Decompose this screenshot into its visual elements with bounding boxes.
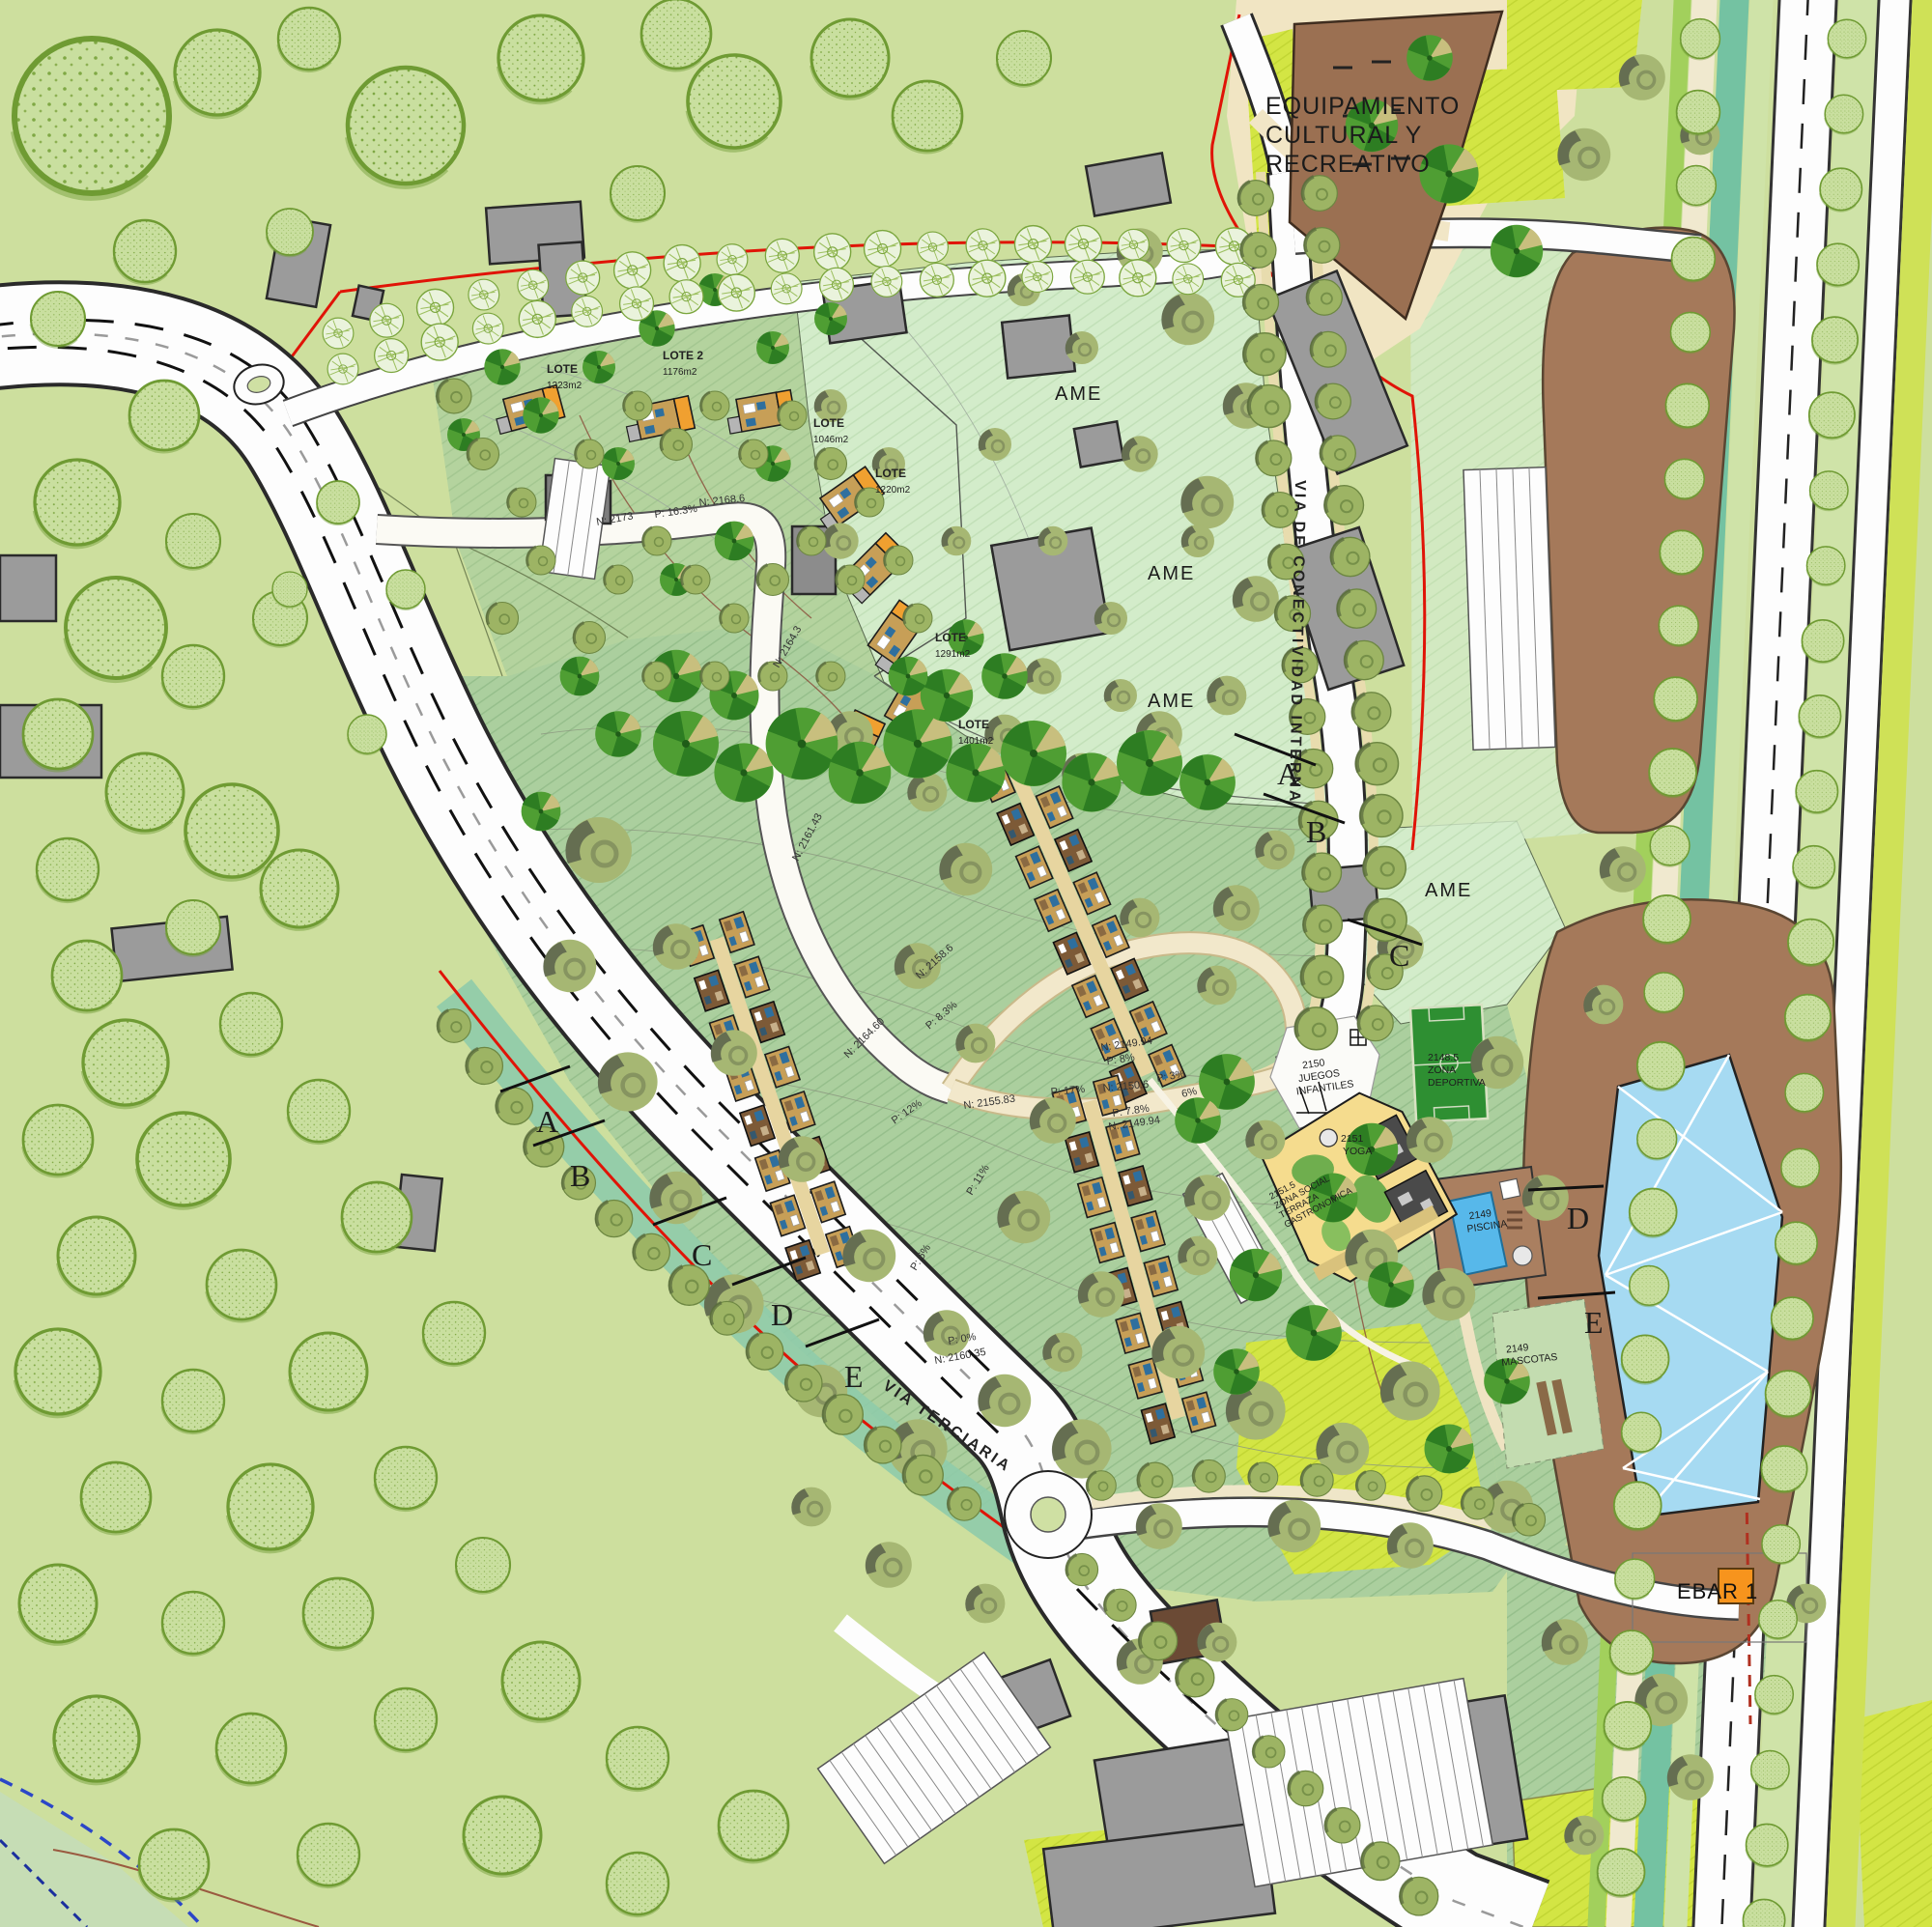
street-tree-icon (1248, 1462, 1278, 1492)
small-tree-icon (884, 546, 913, 575)
green-tree-icon (889, 657, 928, 696)
yoga-label: YOGA (1343, 1146, 1372, 1157)
avenue-tree-icon (1766, 1371, 1811, 1417)
green-tree-icon (522, 792, 561, 832)
alley-tree-icon (820, 268, 854, 301)
sketch-tree-icon (66, 578, 166, 680)
avenue-tree-icon (1603, 1777, 1646, 1822)
avenue-tree-icon (1785, 1073, 1823, 1112)
sketch-tree-icon (502, 1642, 580, 1721)
small-tree-icon (642, 662, 671, 691)
small-tree-icon (437, 379, 471, 413)
avenue-tree-icon (1681, 19, 1720, 60)
street-tree-icon (1363, 846, 1406, 889)
section-letter: C (1389, 938, 1409, 973)
lote-area: 1046m2 (813, 435, 849, 445)
street-tree-icon (1345, 640, 1383, 679)
sketch-tree-icon (997, 31, 1051, 86)
avenue-tree-icon (1664, 459, 1704, 499)
green-tree-icon (1175, 1097, 1221, 1144)
lote-label: LOTE 2 (663, 349, 703, 362)
street-tree-icon (1303, 905, 1342, 944)
street-tree-icon (1311, 331, 1347, 367)
sketch-tree-icon (811, 19, 889, 99)
deportiva-elev: 2148.5 (1428, 1052, 1459, 1063)
street-tree-icon (1248, 385, 1291, 428)
green-tree-icon (602, 447, 635, 480)
sketch-tree-icon (175, 30, 260, 117)
small-tree-icon (661, 429, 693, 461)
alley-tree-icon (1070, 260, 1104, 294)
sketch-tree-icon (288, 1080, 350, 1144)
small-tree-icon (468, 439, 499, 470)
avenue-tree-icon (1660, 530, 1703, 575)
sketch-tree-icon (272, 572, 307, 608)
lote-label: LOTE (935, 631, 966, 644)
street-tree-icon (1331, 537, 1370, 576)
avenue-tree-icon (1637, 1119, 1677, 1160)
alley-tree-icon (718, 274, 754, 311)
green-tree-icon (921, 669, 973, 722)
sketch-tree-icon (15, 1329, 100, 1416)
avenue-tree-icon (1677, 91, 1720, 135)
pool-circle (1513, 1246, 1532, 1265)
small-tree-icon (604, 565, 633, 594)
equipamiento-label-3: RECREATIVO (1265, 151, 1431, 178)
green-tree-icon (523, 397, 558, 433)
avenue-tree-icon (1809, 392, 1855, 439)
sketch-tree-icon (348, 715, 386, 754)
small-tree-icon (757, 564, 789, 596)
street-tree-icon (466, 1047, 502, 1084)
alley-tree-icon (966, 229, 1000, 263)
green-tree-icon (715, 522, 754, 561)
green-tree-icon (756, 331, 789, 364)
lote-area: 1291m2 (935, 649, 971, 660)
street-tree-icon (785, 1365, 822, 1402)
sketch-tree-icon (298, 1824, 359, 1887)
green-tree-icon (1230, 1249, 1282, 1301)
street-tree-icon (1301, 1464, 1334, 1497)
sketch-tree-icon (114, 220, 176, 284)
sketch-tree-icon (375, 1447, 437, 1511)
green-tree-icon (766, 708, 838, 780)
alley-tree-icon (614, 252, 651, 289)
sketch-tree-icon (129, 381, 199, 452)
small-tree-icon (797, 526, 826, 555)
alley-tree-icon (871, 267, 902, 298)
sketch-tree-icon (303, 1578, 373, 1650)
equipamiento-label-2: CULTURAL Y (1265, 122, 1422, 149)
avenue-tree-icon (1761, 1446, 1806, 1492)
street-tree-icon (1176, 1658, 1214, 1697)
gray-building (0, 555, 56, 621)
street-tree-icon (1104, 1589, 1136, 1621)
sketch-tree-icon (498, 15, 583, 102)
small-tree-icon (816, 662, 845, 691)
green-tree-icon (1286, 1305, 1342, 1361)
alley-tree-icon (918, 232, 949, 263)
alley-tree-icon (421, 324, 458, 360)
street-tree-icon (1304, 228, 1340, 264)
street-tree-icon (633, 1233, 669, 1270)
sketch-tree-icon (641, 0, 711, 71)
street-tree-icon (1253, 1736, 1285, 1768)
avenue-tree-icon (1812, 317, 1858, 363)
gray-building (1074, 421, 1123, 467)
avenue-tree-icon (1630, 1265, 1669, 1306)
parking-lot (1463, 468, 1555, 751)
avenue-tree-icon (1598, 1849, 1645, 1897)
avenue-tree-icon (1665, 383, 1709, 428)
street-tree-icon (1316, 383, 1351, 419)
avenue-tree-icon (1677, 166, 1717, 207)
small-tree-icon (642, 526, 671, 555)
street-tree-icon (1406, 1476, 1442, 1512)
green-tree-icon (595, 711, 641, 757)
green-tree-icon (981, 653, 1028, 699)
avenue-tree-icon (1802, 620, 1843, 663)
sketch-tree-icon (220, 993, 282, 1057)
alley-tree-icon (327, 354, 358, 384)
green-tree-icon (484, 349, 520, 384)
sketch-tree-icon (607, 1853, 668, 1916)
deportiva-label: DEPORTIVA (1428, 1077, 1486, 1089)
alley-tree-icon (375, 339, 409, 373)
street-tree-icon (1356, 743, 1399, 785)
alley-tree-icon (1119, 229, 1150, 260)
street-tree-icon (710, 1301, 744, 1335)
avenue-tree-icon (1604, 1702, 1651, 1750)
street-tree-icon (1302, 176, 1338, 212)
sketch-tree-icon (83, 1020, 168, 1107)
street-tree-icon (1243, 285, 1279, 321)
lote-label: LOTE (875, 467, 906, 480)
small-tree-icon (815, 448, 847, 480)
avenue-tree-icon (1759, 1601, 1797, 1639)
street-tree-icon (1337, 589, 1376, 628)
alley-tree-icon (1014, 226, 1051, 263)
sketch-tree-icon (37, 838, 99, 902)
alley-tree-icon (1167, 229, 1201, 263)
street-tree-icon (1301, 955, 1344, 998)
street-tree-icon (1361, 1842, 1400, 1881)
street-tree-icon (1065, 1553, 1097, 1585)
sketch-tree-icon (166, 514, 220, 569)
avenue-tree-icon (1644, 973, 1684, 1013)
avenue-tree-icon (1820, 168, 1861, 211)
ame-label: AME (1148, 691, 1195, 712)
sketch-tree-icon (216, 1714, 286, 1785)
avenue-tree-icon (1817, 243, 1859, 286)
small-tree-icon (575, 439, 604, 468)
sketch-tree-icon (228, 1464, 313, 1551)
street-tree-icon (1302, 853, 1341, 892)
ame-label: AME (1148, 563, 1195, 584)
avenue-tree-icon (1788, 920, 1833, 966)
roundabout-island (1031, 1497, 1065, 1532)
street-tree-icon (903, 1455, 943, 1494)
sketch-tree-icon (423, 1302, 485, 1366)
sketch-tree-icon (261, 850, 338, 929)
sketch-tree-icon (464, 1797, 541, 1876)
street-tree-icon (1513, 1503, 1546, 1536)
avenue-tree-icon (1776, 1222, 1817, 1264)
sketch-tree-icon (31, 292, 85, 347)
sketch-tree-icon (23, 1105, 93, 1176)
street-tree-icon (1216, 1699, 1248, 1731)
alley-tree-icon (417, 289, 454, 326)
avenue-tree-icon (1643, 895, 1690, 944)
green-tree-icon (1425, 1425, 1474, 1474)
street-tree-icon (438, 1009, 471, 1043)
small-tree-icon (507, 488, 536, 517)
sketch-tree-icon (342, 1182, 412, 1254)
sketch-tree-icon (54, 1696, 139, 1783)
street-tree-icon (1256, 440, 1292, 476)
avenue-tree-icon (1810, 471, 1848, 510)
sketch-tree-icon (81, 1462, 151, 1534)
green-tree-icon (714, 743, 773, 802)
avenue-tree-icon (1828, 19, 1865, 58)
alley-tree-icon (669, 280, 703, 314)
site-plan-svg: EQUIPAMIENTO CULTURAL Y RECREATIVO AME A… (0, 0, 1932, 1927)
green-tree-icon (1001, 721, 1066, 786)
sketch-tree-icon (607, 1727, 668, 1791)
sketch-tree-icon (348, 68, 464, 186)
alley-tree-icon (717, 244, 748, 275)
avenue-tree-icon (1825, 95, 1862, 133)
sketch-tree-icon (375, 1688, 437, 1752)
sketch-tree-icon (185, 784, 278, 879)
green-tree-icon (560, 657, 600, 696)
sketch-tree-icon (139, 1829, 209, 1901)
lote-label: LOTE (813, 416, 844, 430)
small-tree-icon (720, 604, 749, 633)
green-tree-icon (1062, 752, 1121, 811)
avenue-tree-icon (1785, 995, 1831, 1041)
lote-area: 1220m2 (875, 485, 911, 496)
street-tree-icon (747, 1333, 783, 1370)
section-letter: A (536, 1104, 558, 1139)
street-tree-icon (865, 1427, 901, 1463)
street-tree-icon (1358, 1006, 1394, 1041)
alley-tree-icon (518, 269, 549, 300)
alley-tree-icon (469, 279, 499, 310)
mascotas-elev: 2149 (1505, 1342, 1529, 1355)
avenue-tree-icon (1630, 1189, 1677, 1237)
street-tree-icon (823, 1395, 863, 1434)
street-tree-icon (496, 1088, 532, 1124)
street-tree-icon (1139, 1622, 1178, 1660)
alley-tree-icon (323, 318, 354, 349)
alley-tree-icon (1120, 260, 1156, 297)
sketch-tree-icon (278, 8, 340, 71)
sketch-tree-icon (35, 460, 120, 547)
street-tree-icon (1360, 795, 1403, 837)
sketch-tree-icon (267, 209, 313, 256)
avenue-tree-icon (1614, 1482, 1662, 1530)
street-tree-icon (1288, 1771, 1322, 1805)
alley-tree-icon (572, 296, 603, 326)
avenue-tree-icon (1649, 749, 1696, 797)
section-letter: D (1567, 1201, 1589, 1235)
street-tree-icon (948, 1487, 981, 1520)
small-tree-icon (739, 439, 768, 468)
avenue-tree-icon (1755, 1676, 1793, 1714)
lote-area: 1223m2 (547, 381, 582, 391)
street-tree-icon (1325, 1808, 1360, 1843)
avenue-tree-icon (1622, 1412, 1662, 1453)
equipamiento-label-1: EQUIPAMIENTO (1265, 93, 1460, 120)
avenue-tree-icon (1670, 312, 1710, 353)
street-tree-icon (1364, 898, 1406, 941)
sketch-tree-icon (162, 1370, 224, 1433)
small-tree-icon (903, 604, 932, 633)
small-tree-icon (700, 662, 729, 691)
street-tree-icon (1238, 181, 1274, 216)
sketch-tree-icon (106, 753, 184, 833)
green-tree-icon (814, 302, 847, 335)
small-tree-icon (526, 546, 555, 575)
green-tree-icon (1213, 1348, 1260, 1395)
chartreuse-avenue-corner (1855, 1700, 1932, 1927)
sketch-tree-icon (893, 81, 962, 153)
section-letter: E (844, 1359, 864, 1394)
avenue-tree-icon (1772, 1297, 1813, 1340)
street-tree-icon (1324, 486, 1363, 524)
sketch-tree-icon (162, 645, 224, 709)
avenue-tree-icon (1654, 677, 1697, 722)
alley-tree-icon (370, 303, 404, 337)
street-tree-icon (1321, 436, 1356, 471)
sketch-tree-icon (719, 1791, 788, 1862)
green-tree-icon (1368, 1261, 1414, 1308)
avenue-tree-icon (1622, 1335, 1669, 1383)
sketch-tree-icon (19, 1565, 97, 1644)
alley-tree-icon (519, 300, 555, 337)
street-tree-icon (1087, 1471, 1117, 1501)
alley-tree-icon (771, 273, 802, 304)
avenue-tree-icon (1659, 606, 1698, 646)
alley-tree-icon (620, 287, 654, 321)
avenue-tree-icon (1762, 1525, 1800, 1564)
yoga-elev: 2151 (1341, 1133, 1364, 1145)
avenue-tree-icon (1650, 826, 1690, 866)
street-tree-icon (1240, 233, 1276, 269)
alley-tree-icon (969, 260, 1006, 297)
green-tree-icon (1117, 730, 1182, 796)
small-tree-icon (574, 622, 606, 654)
street-tree-icon (1352, 693, 1391, 731)
green-tree-icon (1179, 754, 1236, 810)
alley-tree-icon (664, 245, 700, 282)
section-letter: B (1306, 814, 1326, 849)
alley-tree-icon (920, 263, 953, 297)
sketch-tree-icon (290, 1333, 367, 1412)
sketch-tree-icon (52, 941, 122, 1012)
ame-label: AME (1425, 880, 1472, 901)
sketch-tree-icon (688, 55, 781, 150)
green-tree-icon (1491, 225, 1543, 277)
alley-tree-icon (1022, 262, 1053, 293)
sketch-tree-icon (23, 699, 93, 771)
street-tree-icon (596, 1201, 633, 1237)
avenue-tree-icon (1671, 237, 1715, 281)
ebar-label: EBAR 1 (1677, 1579, 1758, 1603)
sketch-tree-icon (386, 570, 425, 609)
lote-area: 1176m2 (663, 367, 697, 378)
avenue-tree-icon (1796, 771, 1837, 813)
gray-building (1002, 316, 1075, 379)
alley-tree-icon (1065, 225, 1101, 262)
street-tree-icon (1193, 1459, 1226, 1492)
site-plan: EQUIPAMIENTO CULTURAL Y RECREATIVO AME A… (0, 0, 1932, 1927)
green-tree-icon (1406, 35, 1453, 81)
alley-tree-icon (814, 234, 851, 270)
small-tree-icon (836, 565, 865, 594)
avenue-tree-icon (1781, 1148, 1819, 1187)
spa-tub (1499, 1178, 1520, 1199)
avenue-tree-icon (1610, 1630, 1654, 1675)
section-letter: E (1584, 1305, 1604, 1340)
green-tree-icon (653, 711, 719, 777)
street-tree-icon (1137, 1462, 1173, 1498)
green-tree-icon (829, 742, 892, 805)
avenue-tree-icon (1793, 846, 1834, 889)
street-tree-icon (1307, 280, 1343, 316)
sketch-tree-icon (207, 1250, 276, 1321)
alley-tree-icon (1173, 264, 1204, 295)
sketch-tree-icon (317, 481, 359, 524)
small-tree-icon (681, 565, 710, 594)
street-tree-icon (1462, 1487, 1494, 1519)
avenue-tree-icon (1799, 695, 1840, 738)
street-tree-icon (1400, 1877, 1438, 1915)
avenue-tree-icon (1747, 1824, 1788, 1866)
sketch-tree-icon (162, 1592, 224, 1656)
avenue-tree-icon (1751, 1750, 1789, 1789)
green-tree-icon (582, 351, 615, 383)
sketch-tree-icon (58, 1217, 135, 1296)
deportiva-label: ZONA (1428, 1064, 1456, 1076)
avenue-tree-icon (1637, 1042, 1685, 1091)
street-tree-icon (1243, 333, 1286, 376)
sketch-tree-icon (166, 900, 220, 955)
alley-tree-icon (472, 313, 503, 344)
ame-label: AME (1055, 383, 1102, 405)
street-tree-icon (1356, 1471, 1386, 1501)
avenue-tree-icon (1806, 547, 1844, 585)
sketch-tree-icon (14, 39, 169, 197)
section-letter: D (771, 1297, 793, 1332)
small-tree-icon (700, 391, 729, 420)
alley-tree-icon (566, 261, 600, 295)
green-tree-icon (946, 743, 1005, 802)
section-letter: C (692, 1237, 712, 1272)
sketch-tree-icon (137, 1113, 230, 1207)
lote-area: 1401m2 (958, 736, 994, 747)
lote-label: LOTE (547, 362, 578, 376)
sketch-tree-icon (456, 1538, 510, 1593)
small-tree-icon (487, 603, 519, 635)
section-letter: B (570, 1158, 590, 1193)
alley-tree-icon (865, 231, 901, 268)
avenue-tree-icon (1615, 1559, 1655, 1600)
small-tree-icon (623, 391, 652, 420)
small-tree-icon (778, 401, 807, 430)
street-tree-icon (1295, 1007, 1338, 1050)
